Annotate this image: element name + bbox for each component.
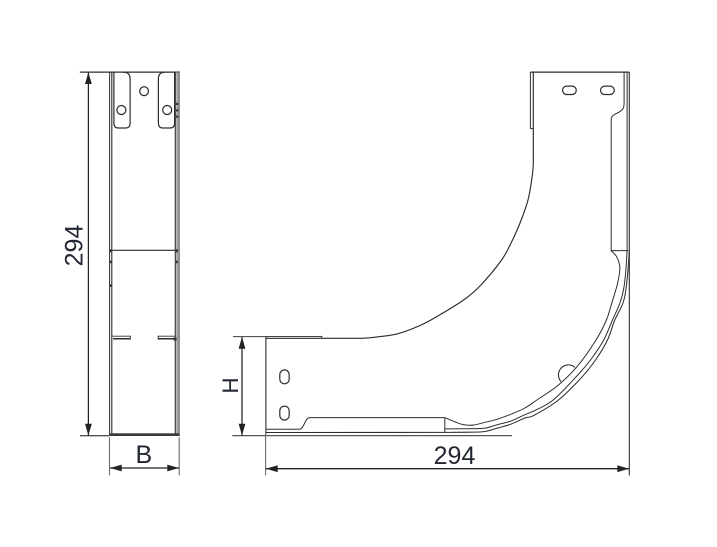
svg-text:B: B [135,441,152,469]
svg-text:294: 294 [434,442,476,470]
svg-text:294: 294 [61,225,89,267]
svg-text:H: H [218,377,243,393]
